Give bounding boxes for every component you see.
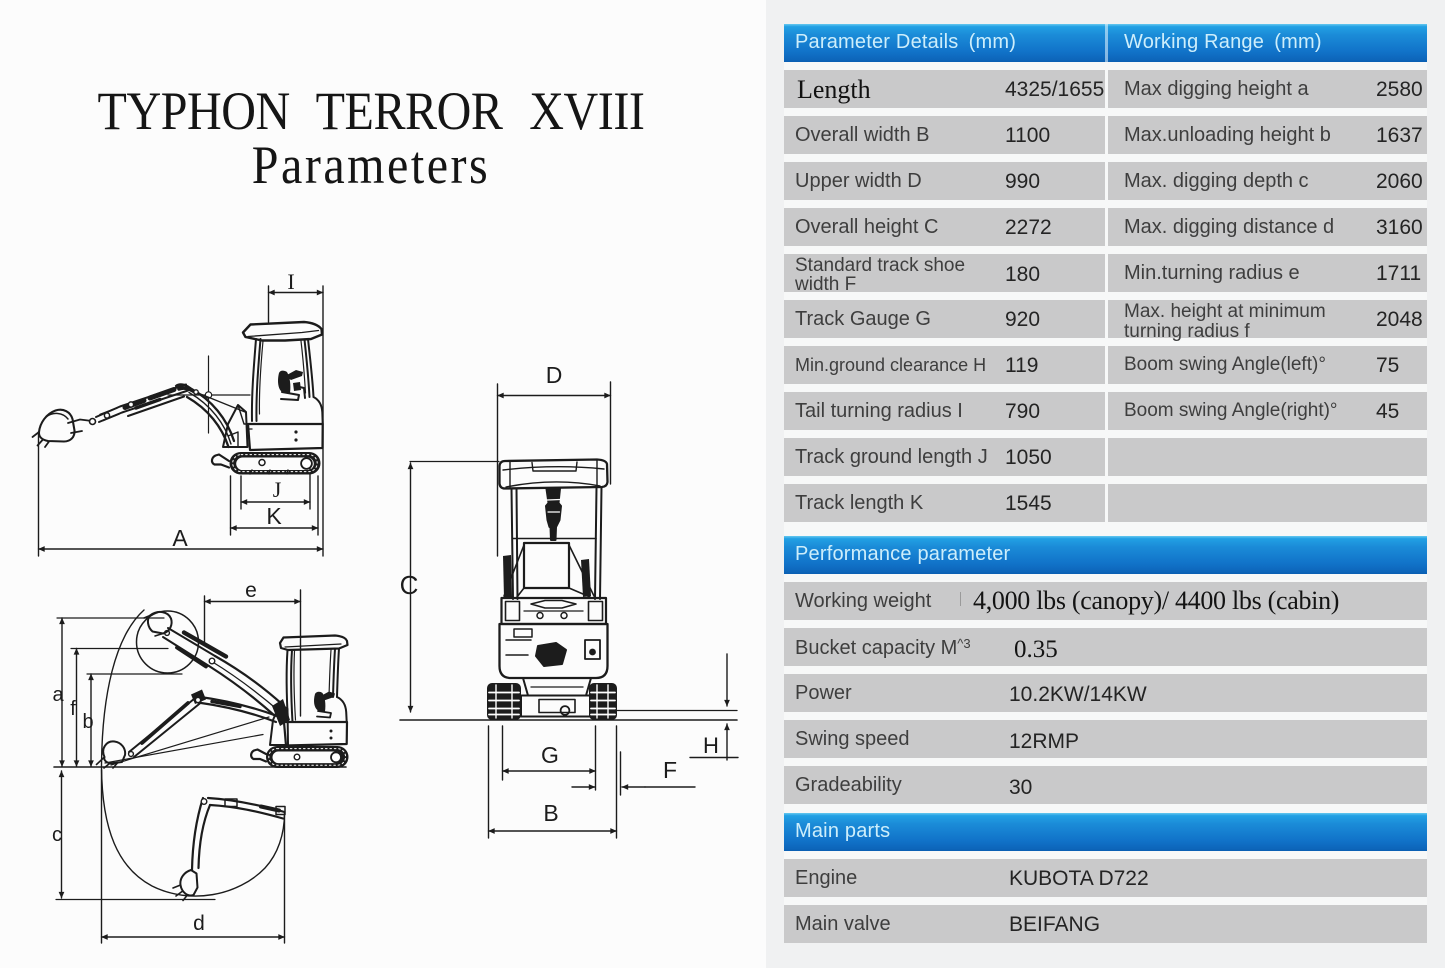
svg-text:d: d [193,912,205,935]
svg-text:I: I [287,269,294,294]
svg-text:K: K [266,503,282,529]
svg-text:A: A [172,525,188,551]
svg-text:D: D [546,362,563,388]
svg-text:J: J [273,477,282,502]
svg-text:f: f [70,698,76,720]
svg-text:H: H [703,733,719,758]
svg-text:B: B [543,800,558,826]
svg-text:G: G [541,742,559,768]
svg-text:b: b [82,711,93,733]
svg-text:C: C [400,570,419,600]
svg-text:F: F [663,757,677,783]
svg-text:a: a [52,684,64,706]
svg-text:c: c [52,824,62,846]
svg-text:e: e [245,579,257,602]
